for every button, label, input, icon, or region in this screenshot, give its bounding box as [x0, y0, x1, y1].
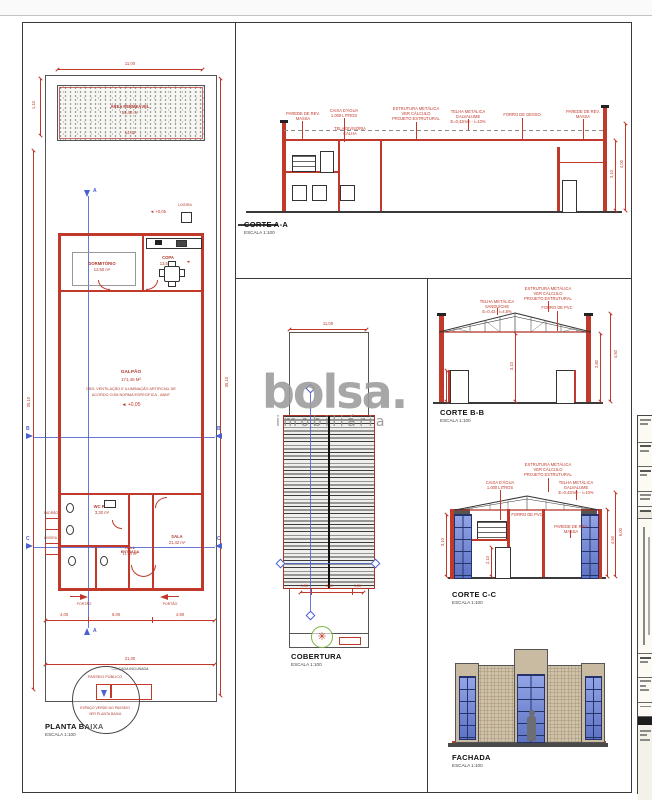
cc-dim-right-outer — [615, 492, 616, 577]
section-letter-a-top: A — [93, 188, 97, 194]
galpao-level: ◄ +0,05 — [111, 403, 151, 408]
yard-level-mark: ◄ +0,05 — [150, 210, 166, 214]
aa-leader — [468, 119, 469, 130]
level-arrow-icon: ◄ — [122, 402, 127, 408]
titleblock-vertical-bar — [648, 537, 650, 635]
chair — [168, 281, 176, 287]
bb-leader — [557, 311, 558, 331]
cobertura-section-line-h — [282, 563, 374, 564]
bb-door-jamb — [448, 370, 450, 402]
cc-callout-caixa: CAIXA D'ÁGUA 1.000 LITROS — [478, 480, 522, 490]
padrao-label: PADRÃO — [44, 512, 58, 516]
bb-callout-forro: FORRO DE PVC — [540, 305, 574, 310]
aa-dim-outer — [625, 123, 626, 211]
fachada-left-glazing — [459, 676, 476, 740]
dim-seg-2: 6,00 — [112, 613, 120, 617]
titleblock-row — [638, 419, 652, 443]
aa-leader — [416, 122, 417, 139]
cc-dim-left-value: 3,10 — [441, 538, 445, 546]
cc-callout-estrutura: ESTRUTURA METÁLICA VER CÁLCULO PROJETO E… — [520, 462, 576, 477]
lixeira-label: LIXEIRA — [172, 203, 198, 207]
aa-door — [562, 180, 577, 213]
lixeira-box — [181, 212, 192, 223]
cc-label-forro: FORRO DE PVC — [510, 512, 544, 517]
fachada-right-glazing — [585, 676, 602, 740]
wall-top — [58, 233, 204, 236]
dim-tick — [352, 589, 353, 595]
fachada-title: FACHADA — [452, 753, 491, 762]
dim-row — [45, 620, 215, 621]
aa-window — [312, 185, 327, 201]
padrao-box — [45, 518, 59, 530]
bb-right-door — [556, 370, 575, 404]
toilet — [100, 556, 108, 566]
wall-dorm-copa — [142, 235, 144, 290]
section-marker-c-right-icon — [215, 543, 222, 549]
dim-right-full-value: 35,10 — [225, 377, 229, 387]
aa-ceiling-line — [560, 162, 604, 163]
section-letter-c-left: C — [26, 536, 30, 542]
cobertura-dim-1: 1,50 — [301, 585, 308, 589]
aa-upper-door — [320, 151, 334, 173]
dim-tick — [152, 617, 153, 623]
drawing-sheet: ÁREA PERMEÁVEL 59,40 m² 11,00 14,40 1,10… — [0, 0, 652, 800]
bb-dim-center-value: 3,10 — [510, 362, 514, 370]
bb-dim-door — [446, 370, 447, 402]
bb-dim-right-inner-value: 2,80 — [595, 360, 599, 368]
section-letter-b-right: B — [217, 426, 221, 432]
dim-line-right-full — [220, 78, 221, 696]
passeio-note-2: VER PLANTA BAIXA — [70, 712, 140, 716]
cc-label-parede: PAREDE DE REV. MASSA — [548, 524, 594, 534]
sala-area: 21,42 m² — [156, 541, 198, 546]
corte-cc-scale: ESCALA 1:100 — [452, 600, 483, 605]
bb-dim-center — [515, 333, 516, 402]
cc-interior-wall-2 — [542, 509, 545, 577]
aa-window — [340, 185, 355, 201]
cobertura-ramp — [339, 637, 361, 645]
cobertura-dim-top: 11,00 — [313, 322, 343, 326]
galpao-obs1: OBS: VENTILAÇÃO E ILUMINAÇÃO ARTIFICIAL … — [66, 387, 196, 391]
cobertura-dim-2: 8,00 — [326, 585, 333, 589]
aa-leader — [583, 119, 584, 139]
wall-hall-sala — [152, 495, 154, 588]
galpao-obs2: ACORDO COM NORMA ESPECÍFICA - ABNT — [66, 393, 196, 397]
chair — [159, 269, 165, 277]
cobertura-dim-top-line — [289, 329, 367, 330]
dim-frontage — [45, 664, 215, 665]
wall-bath-hall — [128, 495, 130, 588]
gate-label-left: PORTÃO — [66, 602, 102, 606]
toilet — [66, 503, 74, 513]
gate-line — [167, 596, 179, 597]
chair — [179, 269, 185, 277]
cobertura-scale: ESCALA 1:100 — [291, 662, 322, 667]
toilet — [66, 525, 74, 535]
section-letter-b-left: B — [26, 426, 30, 432]
corte-bb-scale: ESCALA 1:100 — [440, 418, 471, 423]
dim-frontage-value: 21,00 — [115, 657, 145, 661]
aa-right-wall — [603, 108, 607, 211]
bb-door-jamb — [574, 370, 576, 402]
gate-line — [70, 596, 82, 597]
wall-bottom — [58, 588, 204, 591]
ramp-divider — [110, 684, 112, 698]
cc-door — [495, 547, 511, 579]
detail-marker-icon — [101, 690, 107, 697]
aa-left-wall — [282, 123, 286, 211]
bb-dim-right-outer-value: 4,50 — [614, 350, 618, 358]
cobertura-title: COBERTURA — [291, 652, 342, 661]
lixeira-box-2 — [45, 543, 59, 555]
cc-dim-right-inner — [607, 509, 608, 577]
aa-callout-parede: PAREDE DE REV. MASSA — [283, 111, 323, 121]
titleblock-footer-box — [638, 717, 652, 800]
sink — [104, 500, 116, 508]
cc-dim-door — [491, 547, 492, 577]
aa-callout-estrutura: ESTRUTURA METÁLICA VER CÁLCULO PROJETO E… — [390, 106, 442, 121]
aa-water-tank — [292, 155, 316, 172]
dim-seg-1: 4,00 — [60, 613, 68, 617]
titleblock-row — [638, 510, 652, 519]
aa-window — [292, 185, 307, 201]
kitchen-stove — [176, 240, 187, 247]
cc-water-tank — [477, 521, 507, 540]
dim-line-top — [57, 69, 203, 70]
page-top-line — [0, 15, 652, 16]
galpao-label: GALPÃO — [96, 370, 166, 376]
section-letter-c-right: C — [217, 536, 221, 542]
wc-area: 3,30 m² — [82, 511, 122, 516]
titleblock-row — [638, 657, 652, 678]
bb-left-door — [450, 370, 469, 404]
cc-leader — [570, 530, 571, 538]
wall-lower-band-top — [58, 493, 204, 495]
corte-cc-title: CORTE C-C — [452, 590, 496, 599]
dim-permeable-value: 14,40 — [115, 131, 145, 135]
aa-interior-wall-2 — [380, 140, 382, 211]
cc-dim-left — [446, 514, 447, 577]
fachada-ground — [448, 743, 608, 747]
wall-left — [58, 233, 61, 591]
aa-callout-tela: TELA DIVISÓRIA CALHA — [330, 126, 370, 136]
level-arrow-icon: ◄ — [150, 209, 154, 214]
dim-line-left-full — [33, 150, 34, 690]
passeio-label: PASSEIO PÚBLICO — [72, 675, 138, 679]
aa-callout-forro: FORRO DE GESSO — [502, 112, 542, 117]
cc-dim-right-outer-value: 6,00 — [619, 528, 623, 536]
corte-bb-title: CORTE B-B — [440, 408, 484, 417]
title-block — [637, 415, 652, 794]
tree-icon: ✳ — [311, 626, 333, 648]
section-marker-a-top-icon — [84, 190, 90, 197]
section-marker-c-left-icon — [26, 543, 33, 549]
page-top-margin — [0, 0, 652, 15]
cobertura-dim-3: 1,50 — [354, 585, 361, 589]
panel-divider-horizontal — [235, 278, 631, 279]
aa-dim-outer-value: 4,00 — [620, 160, 624, 168]
aa-leader — [522, 118, 523, 139]
section-marker-b-left-icon — [26, 433, 33, 439]
bb-dim-door-value: 2,10 — [441, 380, 445, 388]
aa-roof-beam — [284, 139, 606, 141]
aa-callout-caixa: CAIXA D'ÁGUA 1.000 LITROS — [322, 108, 366, 118]
permeable-area-value: 59,40 m² — [95, 111, 165, 116]
aa-callout-parede-2: PAREDE DE REV. MASSA — [560, 109, 606, 119]
titleblock-footer-header — [638, 717, 652, 725]
wall-rooms-bottom — [58, 290, 204, 292]
panel-divider-vertical-right — [427, 278, 428, 792]
aa-dim-inner — [615, 140, 616, 211]
level-arrow-icon: ◄ — [186, 259, 190, 264]
gate-label-right: PORTÃO — [152, 602, 188, 606]
galpao-area: 171,45 M² — [96, 377, 166, 382]
cc-leader — [576, 490, 577, 500]
dim-tick — [311, 589, 312, 595]
cobertura-section-line-v — [310, 390, 311, 612]
cc-left-glazing — [454, 514, 472, 579]
chair — [168, 261, 176, 267]
planta-scale: ESCALA 1:100 — [45, 732, 76, 737]
dim-seg-3: 4,80 — [176, 613, 184, 617]
dim-top-value: 11,00 — [115, 62, 145, 66]
bb-callout-estrutura: ESTRUTURA METÁLICA VER CÁLCULO PROJETO E… — [520, 286, 576, 301]
passeio-note-1: ESPAÇO VERDE NO PASSEIO — [70, 706, 140, 710]
lixeira-label-2: LIXEIRA — [44, 537, 57, 541]
aa-front-wall — [557, 147, 560, 211]
dorm-area: 12,50 m² — [72, 268, 132, 273]
section-marker-b-right-icon — [215, 433, 222, 439]
cc-leader — [500, 490, 501, 520]
titleblock-row — [638, 680, 652, 703]
copa-level-mark: ◄ — [186, 260, 190, 264]
titleblock-vertical-bar — [643, 527, 645, 645]
fachada-scale: ESCALA 1:100 — [452, 763, 483, 768]
toilet — [68, 556, 76, 566]
dim-line-left-top — [40, 78, 41, 136]
bb-dim-right-outer — [610, 313, 611, 402]
cc-tank-platform — [472, 539, 508, 541]
dim-left-full-value: 35,10 — [27, 397, 31, 407]
corte-aa-scale: ESCALA 1:100 — [244, 230, 275, 235]
titleblock-map-box — [638, 519, 652, 654]
bb-leader — [497, 308, 498, 315]
cc-dim-door-value: 2,10 — [486, 556, 490, 564]
gate-arrow-right-icon — [160, 594, 168, 600]
panel-divider-vertical-left — [235, 22, 236, 792]
gate-arrow-left-icon — [80, 594, 88, 600]
bb-dim-right-inner — [600, 333, 601, 402]
titleblock-row — [638, 706, 652, 717]
table — [164, 266, 180, 282]
aa-dim-inner-value: 3,10 — [610, 170, 614, 178]
titleblock-row — [638, 494, 652, 507]
dim-tick — [88, 617, 89, 623]
titleblock-row — [638, 445, 652, 467]
aa-leader — [302, 121, 303, 139]
person-silhouette-icon — [527, 716, 536, 741]
wall-right — [201, 233, 204, 591]
hall-area: 11,55 m² — [118, 552, 142, 556]
dim-left-top-value: 1,10 — [32, 101, 36, 109]
section-letter-a-bottom: A — [93, 628, 97, 634]
section-marker-a-bottom-icon — [84, 628, 90, 635]
titleblock-row — [638, 470, 652, 492]
kitchen-sink — [155, 240, 162, 245]
wall-bath-inner-v — [95, 547, 97, 588]
corte-aa-title: CORTE A-A — [244, 220, 288, 229]
